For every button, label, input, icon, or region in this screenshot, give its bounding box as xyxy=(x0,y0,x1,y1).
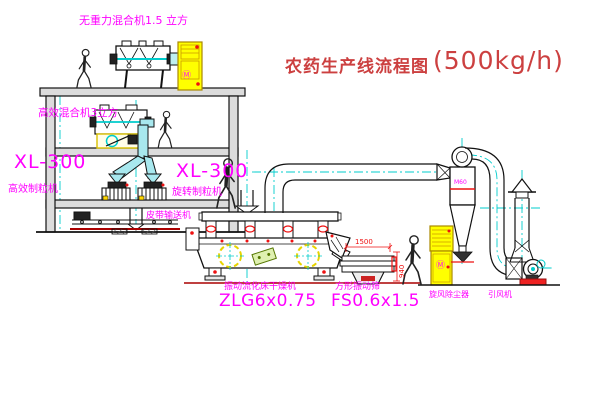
person-mid-floor xyxy=(158,111,172,148)
indicator-dot xyxy=(195,45,199,49)
control-cabinet-lower xyxy=(430,226,453,285)
spring-supports xyxy=(206,221,328,238)
fan-base xyxy=(520,279,546,285)
label-cyclone-tag: M60 xyxy=(454,180,467,186)
indicator-dot xyxy=(196,82,200,86)
diagram-title: 农药生产线流程图 (500kg/h) xyxy=(285,46,564,77)
label-granulator-left-name: 高效制粒机 xyxy=(8,185,58,195)
title-chinese: 农药生产线流程图 xyxy=(285,52,429,77)
label-fan: 引风机 xyxy=(488,291,512,299)
dryer-exhaust-duct xyxy=(265,164,450,213)
label-granulator-center-name: 旋转制粒机 xyxy=(172,188,222,198)
gravity-mixer xyxy=(110,41,181,88)
exhaust-stack xyxy=(508,179,536,262)
label-gravity-mixer: 无重力混合机1.5 立方 xyxy=(79,15,188,26)
stack-cap xyxy=(512,179,532,192)
cabinet-upper-motor-mark: Ⓜ xyxy=(182,72,191,81)
indicator-dot xyxy=(448,230,451,233)
indicator-dot xyxy=(447,266,450,269)
label-belt-conveyor: 皮带输送机 xyxy=(146,212,191,221)
label-sieve-model: FS0.6x1.5 xyxy=(331,293,420,310)
label-granulator-left-model: XL-300 xyxy=(14,153,86,172)
indicator-dot xyxy=(162,184,165,187)
granulator-right xyxy=(138,182,166,200)
label-cyclone: 旋风除尘器 xyxy=(429,291,469,299)
dimension-1500: 1500 xyxy=(355,239,373,246)
cyclone-separator xyxy=(450,147,475,262)
label-granulator-center-model: XL-300 xyxy=(176,162,248,181)
cabinet-lower-motor-mark: Ⓜ xyxy=(436,262,445,271)
indicator-dot xyxy=(126,184,129,187)
person-top-floor xyxy=(77,49,91,88)
cad-flow-diagram: 农药生产线流程图 (500kg/h) 无重力混合机1.5 立方 高效混合机3立方… xyxy=(0,0,600,403)
label-high-eff-mixer: 高效混合机3立方 xyxy=(38,108,118,119)
belt-motor xyxy=(74,212,90,220)
granulator-left xyxy=(102,182,130,200)
label-dryer-model: ZLG6x0.75 xyxy=(219,293,317,310)
title-capacity: (500kg/h) xyxy=(433,46,564,75)
control-cabinet-upper xyxy=(178,42,202,90)
dimension-940: 940 xyxy=(399,265,406,278)
